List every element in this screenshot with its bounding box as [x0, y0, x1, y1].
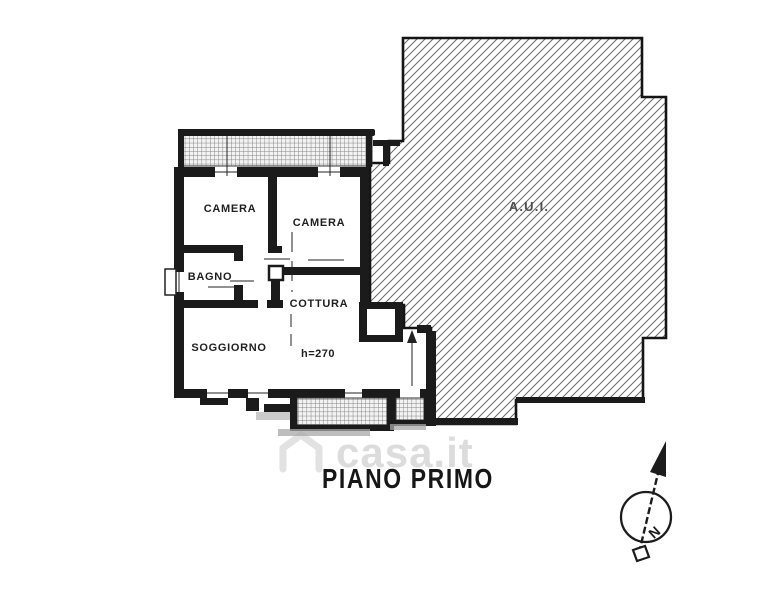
room-label-bagno: BAGNO [188, 271, 232, 283]
balcony-bottom-left [278, 398, 396, 436]
room-label-camera-2: CAMERA [293, 217, 345, 229]
room-label-camera-1: CAMERA [204, 203, 256, 215]
floor-title: PIANO PRIMO [322, 463, 494, 494]
balcony-shadow [390, 424, 426, 430]
room-label-cottura: COTTURA [290, 298, 349, 310]
balcony-bottom-right [390, 398, 436, 430]
floor-plan-canvas: casa.it A.U.I. [0, 0, 759, 600]
floorplan-page: casa.it A.U.I. [0, 0, 759, 600]
room-label-soggiorno: SOGGIORNO [191, 342, 266, 354]
flue [269, 266, 283, 280]
window-sill [165, 269, 176, 295]
compass-tail-square [633, 546, 649, 561]
ceiling-height-label: h=270 [301, 348, 335, 360]
balcony-shadow [278, 429, 370, 436]
room-label-aui: A.U.I. [509, 199, 549, 214]
